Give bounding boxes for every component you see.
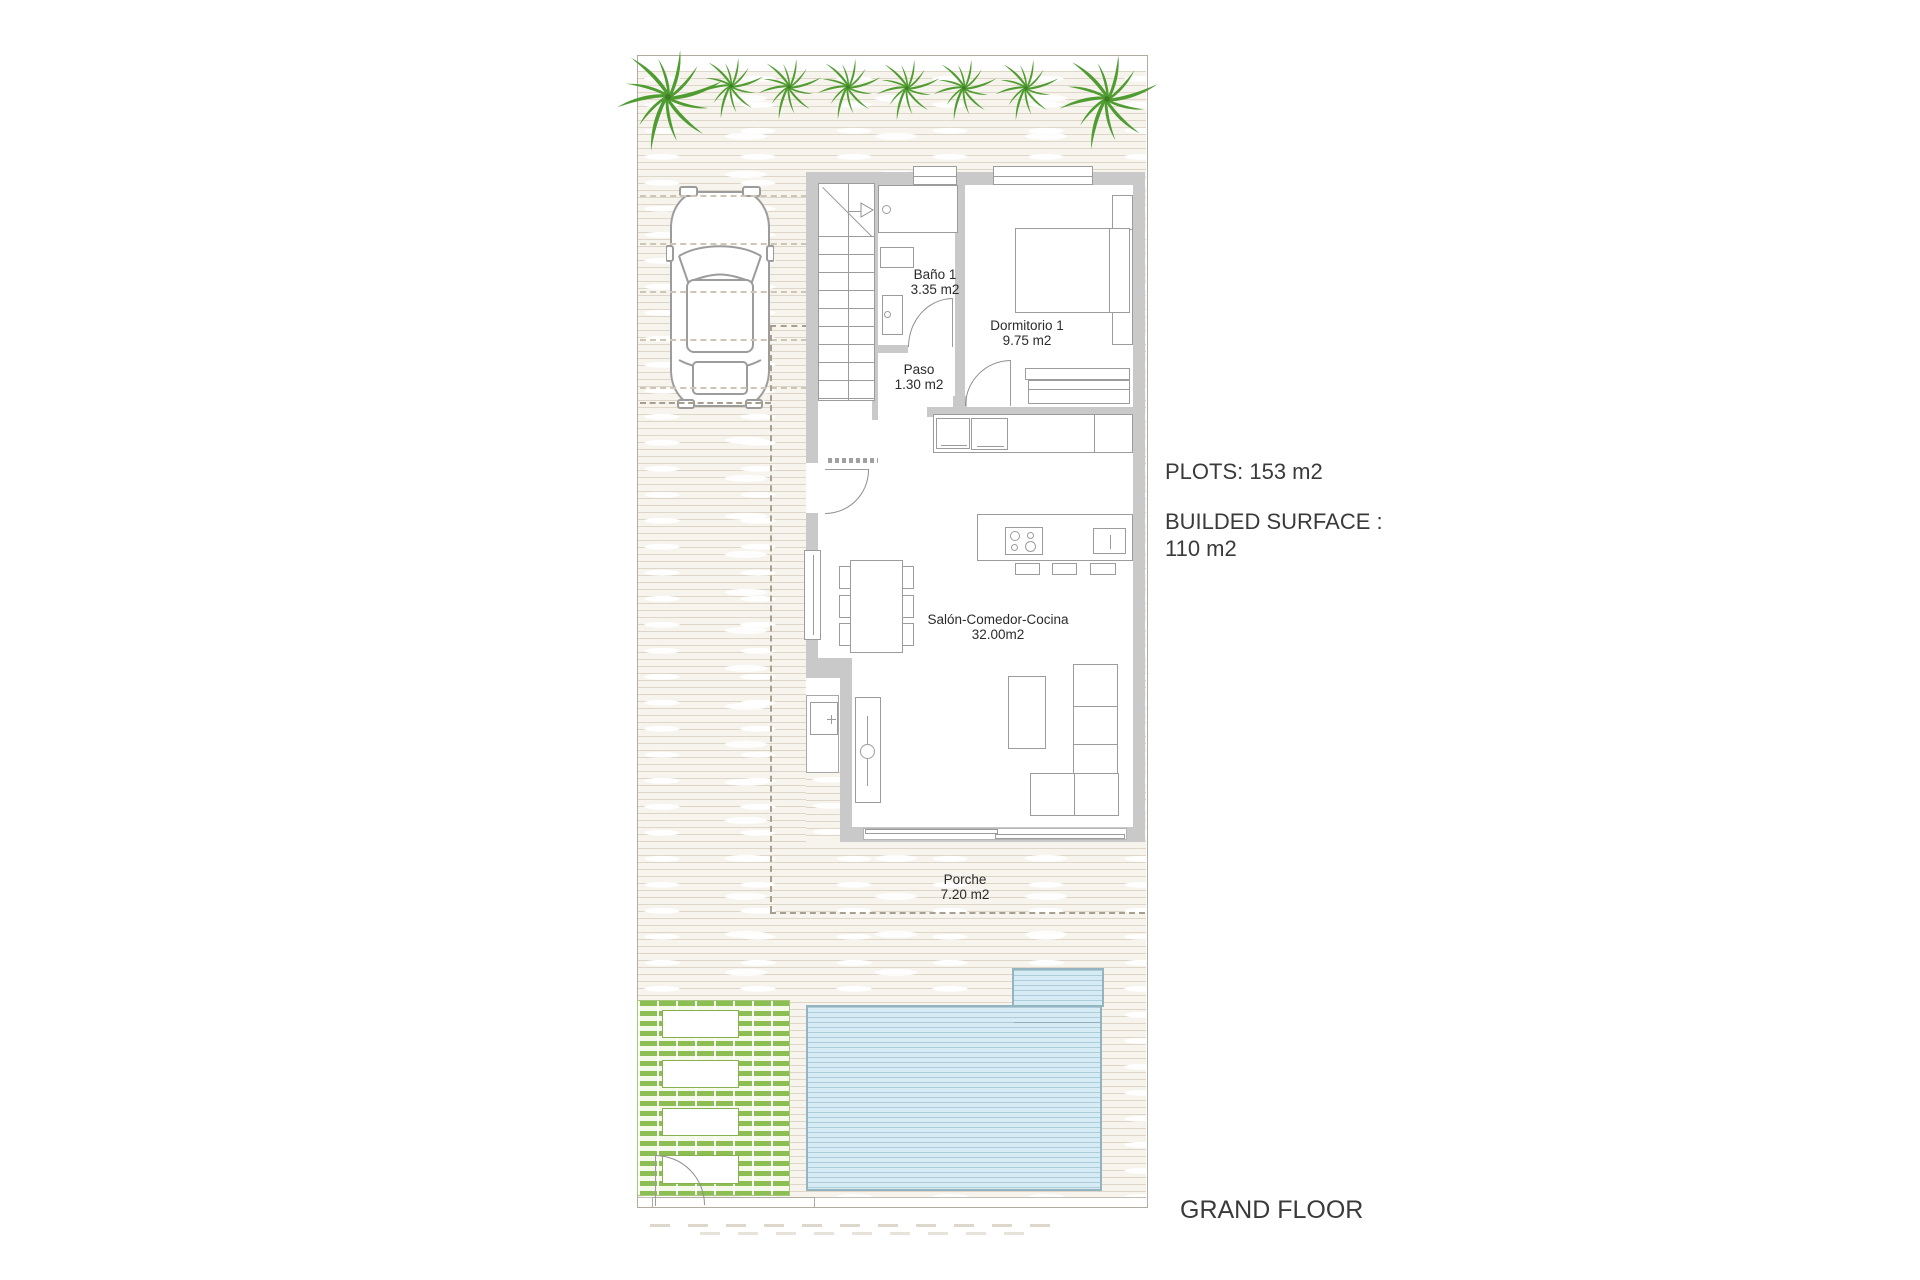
bed (1015, 228, 1130, 313)
parking-dash-row (640, 387, 807, 389)
parking-dash-row (640, 291, 807, 293)
burner (1027, 532, 1034, 539)
parking-dash-row (640, 195, 807, 197)
tv-unit (855, 697, 881, 803)
parking-dash-row (640, 243, 807, 245)
bedroom-shelf (1025, 368, 1130, 380)
wall-step (806, 658, 852, 678)
built-surface-value: 110 m2 (1165, 535, 1383, 562)
bar-stool (1090, 563, 1116, 575)
pool-step-line (1014, 1022, 1102, 1023)
stair-treads (819, 236, 874, 402)
counter-divider (1094, 415, 1095, 452)
room-name: Salón-Comedor-Cocina (916, 612, 1080, 627)
sliding-door-pane-right (995, 834, 1125, 839)
floor-title: GRAND FLOOR (1180, 1196, 1363, 1225)
pool-steps-extension (1012, 968, 1104, 1007)
sliding-door-pane-left (865, 829, 998, 834)
bedroom-door-leaf (1010, 360, 1011, 406)
bath-door-leaf (952, 298, 953, 347)
dining-chair (839, 595, 851, 618)
coffee-table (1008, 676, 1046, 749)
plots-annotation: PLOTS: 153 m2 (1165, 458, 1323, 485)
wall-west-low (806, 640, 818, 660)
room-label-paso: Paso 1.30 m2 (872, 362, 966, 392)
wall-bath-south-stub (878, 345, 908, 353)
parking-dash-row (640, 339, 807, 341)
wardrobe-rail-line (1029, 389, 1129, 390)
kitchen-appliance-1 (936, 418, 970, 449)
driveway-boundary-dashed (770, 325, 772, 912)
shower-drain (884, 311, 891, 318)
porch-boundary-dashed (770, 912, 1145, 914)
window-bathroom (913, 166, 957, 185)
dining-table (850, 560, 903, 653)
wall-west-lower (840, 678, 852, 827)
sofa-cushion-line (1074, 706, 1117, 707)
entrance-door-leaf (825, 469, 869, 470)
floor-plan-canvas: Baño 1 3.35 m2 Dormitorio 1 9.75 m2 Paso… (0, 0, 1920, 1280)
sofa-cushion-line (1074, 774, 1075, 815)
bath-basin-drain (882, 205, 891, 214)
toilet (880, 247, 914, 268)
window-living-west (804, 550, 821, 640)
built-surface-annotation: BUILDED SURFACE : 110 m2 (1165, 508, 1383, 562)
burner (1010, 531, 1020, 541)
dining-chair (839, 623, 851, 646)
cooktop (1005, 527, 1043, 555)
wall-west-mid (806, 513, 818, 551)
sofa-cushion-line (1074, 744, 1117, 745)
dining-chair (902, 566, 914, 589)
bedroom-wardrobe-low (1028, 380, 1130, 404)
burner (1011, 544, 1018, 551)
room-area: 9.75 m2 (960, 333, 1094, 348)
bed-pillow-line (1109, 229, 1110, 312)
sink-tap (1110, 535, 1111, 549)
room-name: Baño 1 (888, 267, 982, 282)
ac-mark (831, 715, 832, 724)
appliance-handle (977, 446, 1004, 447)
dining-chair (839, 566, 851, 589)
kitchen-appliance-2 (971, 418, 1008, 450)
room-label-bano: Baño 1 3.35 m2 (888, 267, 982, 297)
deck-planter (662, 1108, 739, 1136)
appliance-handle (941, 445, 967, 446)
parking-bay-end-line (640, 402, 771, 404)
room-label-salon: Salón-Comedor-Cocina 32.00m2 (916, 612, 1080, 642)
room-label-dormitorio: Dormitorio 1 9.75 m2 (960, 318, 1094, 348)
tv-knob (860, 744, 875, 759)
room-area: 32.00m2 (916, 627, 1080, 642)
swimming-pool (806, 1005, 1102, 1191)
built-surface-label: BUILDED SURFACE : (1165, 508, 1383, 535)
car-top-view (666, 184, 774, 414)
driveway-boundary-dashed-top (770, 325, 808, 327)
dining-chair (902, 623, 914, 646)
room-area: 7.20 m2 (903, 887, 1027, 902)
kitchen-sink (1093, 528, 1126, 554)
room-label-porche: Porche 7.20 m2 (903, 872, 1027, 902)
bar-stool (1052, 563, 1077, 575)
garden-gate-leaf (655, 1155, 656, 1206)
street-curb-dashes-2 (700, 1232, 1030, 1235)
exterior-notch-paving (806, 772, 840, 842)
ac-unit (810, 702, 838, 735)
room-name: Porche (903, 872, 1027, 887)
dining-chair (902, 595, 914, 618)
stair-arrow-stem-v (848, 211, 849, 223)
room-area: 3.35 m2 (888, 282, 982, 297)
room-area: 1.30 m2 (872, 377, 966, 392)
deck-planter (662, 1060, 739, 1088)
room-name: Dormitorio 1 (960, 318, 1094, 333)
burner (1025, 541, 1036, 552)
wall-east (1133, 185, 1145, 842)
sofa-seat-section (1030, 773, 1119, 816)
wall-west-upper (806, 185, 818, 463)
window-bedroom (993, 166, 1093, 185)
palm-tree-icon (1051, 43, 1163, 155)
room-name: Paso (872, 362, 966, 377)
deck-planter (662, 1010, 739, 1038)
bar-stool (1015, 563, 1040, 575)
stair-direction-arrow-icon (860, 202, 874, 218)
entrance-vent-grid (828, 458, 878, 463)
street-curb-dashes (650, 1224, 1050, 1227)
